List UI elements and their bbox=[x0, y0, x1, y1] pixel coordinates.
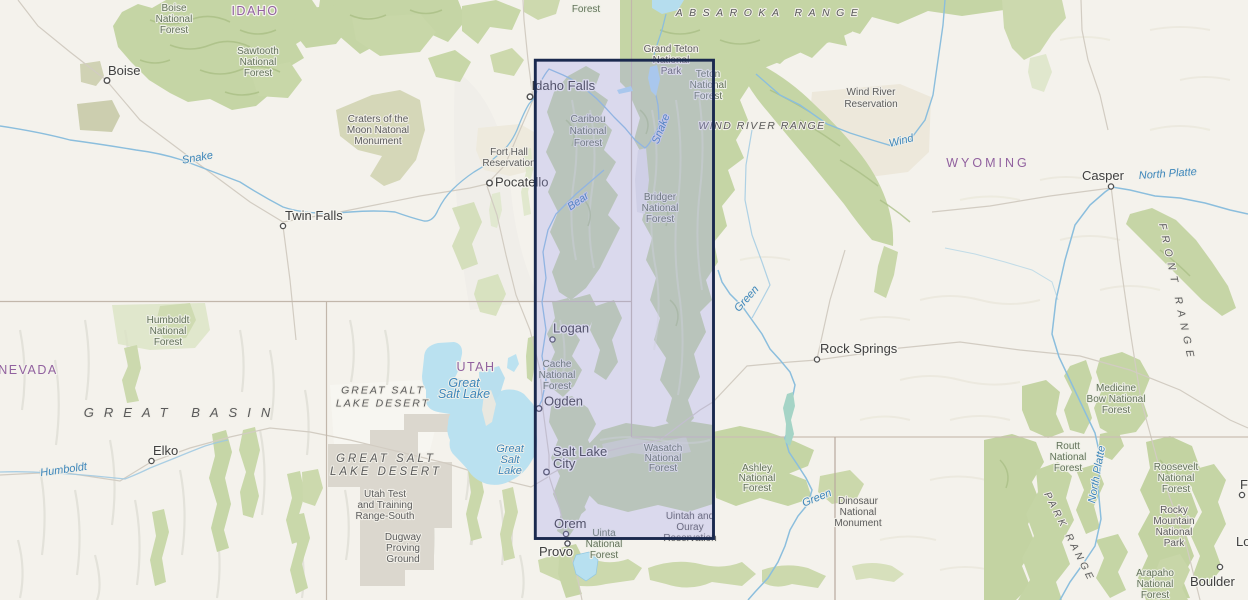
svg-text:Forest: Forest bbox=[154, 337, 183, 348]
svg-text:Wind River: Wind River bbox=[847, 87, 897, 98]
svg-text:Forest: Forest bbox=[743, 483, 772, 494]
svg-text:IDAHO: IDAHO bbox=[231, 4, 278, 18]
svg-text:Rocky: Rocky bbox=[1160, 505, 1188, 516]
svg-text:Medicine: Medicine bbox=[1096, 383, 1136, 394]
svg-text:Dinosaur: Dinosaur bbox=[838, 496, 879, 507]
svg-text:GREAT SALT: GREAT SALT bbox=[336, 453, 436, 465]
svg-text:National: National bbox=[156, 14, 193, 25]
svg-text:Forest: Forest bbox=[1102, 405, 1131, 416]
svg-text:Grand Teton: Grand Teton bbox=[644, 44, 699, 55]
svg-text:National: National bbox=[1156, 527, 1193, 538]
svg-text:Park: Park bbox=[1164, 538, 1186, 549]
svg-text:Humboldt: Humboldt bbox=[147, 315, 190, 326]
svg-text:LAKE DESERT: LAKE DESERT bbox=[330, 466, 442, 478]
svg-text:Lake: Lake bbox=[498, 465, 522, 477]
svg-text:Boise: Boise bbox=[161, 3, 186, 14]
svg-text:National: National bbox=[1137, 579, 1174, 590]
svg-text:Ground: Ground bbox=[386, 554, 419, 565]
svg-text:UTAH: UTAH bbox=[456, 360, 495, 374]
svg-text:Boulder: Boulder bbox=[1190, 574, 1235, 589]
svg-text:Monument: Monument bbox=[354, 136, 401, 147]
svg-text:Fort Hall: Fort Hall bbox=[490, 147, 528, 158]
svg-text:Routt: Routt bbox=[1056, 441, 1080, 452]
svg-text:Mountain: Mountain bbox=[1153, 516, 1194, 527]
svg-text:NEVADA: NEVADA bbox=[0, 363, 58, 377]
svg-text:Forest: Forest bbox=[1054, 463, 1083, 474]
svg-text:Proving: Proving bbox=[386, 543, 420, 554]
svg-text:Reservation: Reservation bbox=[482, 158, 535, 169]
svg-text:Forest: Forest bbox=[590, 550, 619, 561]
svg-text:Moon Natonal: Moon Natonal bbox=[347, 125, 409, 136]
svg-text:Twin Falls: Twin Falls bbox=[285, 208, 343, 223]
svg-text:Utah Test: Utah Test bbox=[364, 489, 406, 500]
svg-text:National: National bbox=[1158, 473, 1195, 484]
svg-text:Casper: Casper bbox=[1082, 168, 1125, 183]
svg-text:Salt Lake: Salt Lake bbox=[438, 387, 490, 401]
svg-text:Forest: Forest bbox=[1141, 590, 1170, 600]
svg-text:National: National bbox=[586, 539, 623, 550]
svg-text:Roosevelt: Roosevelt bbox=[1154, 462, 1199, 473]
svg-text:ABSAROKA RANGE: ABSAROKA RANGE bbox=[675, 7, 865, 19]
svg-text:National: National bbox=[240, 57, 277, 68]
svg-text:WIND RIVER RANGE: WIND RIVER RANGE bbox=[698, 120, 825, 132]
svg-text:National: National bbox=[840, 507, 877, 518]
svg-text:WYOMING: WYOMING bbox=[946, 156, 1030, 170]
svg-text:Monument: Monument bbox=[834, 518, 881, 529]
svg-text:Reservation: Reservation bbox=[844, 99, 897, 110]
svg-text:and Training: and Training bbox=[357, 500, 412, 511]
svg-text:National: National bbox=[150, 326, 187, 337]
svg-text:GREAT BASIN: GREAT BASIN bbox=[84, 405, 280, 420]
svg-text:Range-South: Range-South bbox=[356, 511, 415, 522]
svg-text:Forest: Forest bbox=[160, 25, 189, 36]
svg-text:GREAT SALT: GREAT SALT bbox=[341, 385, 425, 397]
svg-text:Forest: Forest bbox=[572, 4, 601, 15]
svg-text:Elko: Elko bbox=[153, 443, 178, 458]
svg-text:Rock Springs: Rock Springs bbox=[820, 341, 898, 356]
svg-text:F: F bbox=[1240, 477, 1248, 492]
svg-text:Sawtooth: Sawtooth bbox=[237, 46, 279, 57]
svg-text:Boise: Boise bbox=[108, 63, 141, 78]
svg-text:Forest: Forest bbox=[1162, 484, 1191, 495]
svg-text:LAKE DESERT: LAKE DESERT bbox=[336, 398, 430, 410]
svg-text:Dugway: Dugway bbox=[385, 532, 421, 543]
svg-text:Bow National: Bow National bbox=[1087, 394, 1146, 405]
svg-text:Craters of the: Craters of the bbox=[348, 114, 409, 125]
svg-text:Forest: Forest bbox=[244, 68, 273, 79]
svg-text:Arapaho: Arapaho bbox=[1136, 568, 1174, 579]
svg-text:National: National bbox=[1050, 452, 1087, 463]
svg-text:Lo: Lo bbox=[1236, 534, 1248, 549]
